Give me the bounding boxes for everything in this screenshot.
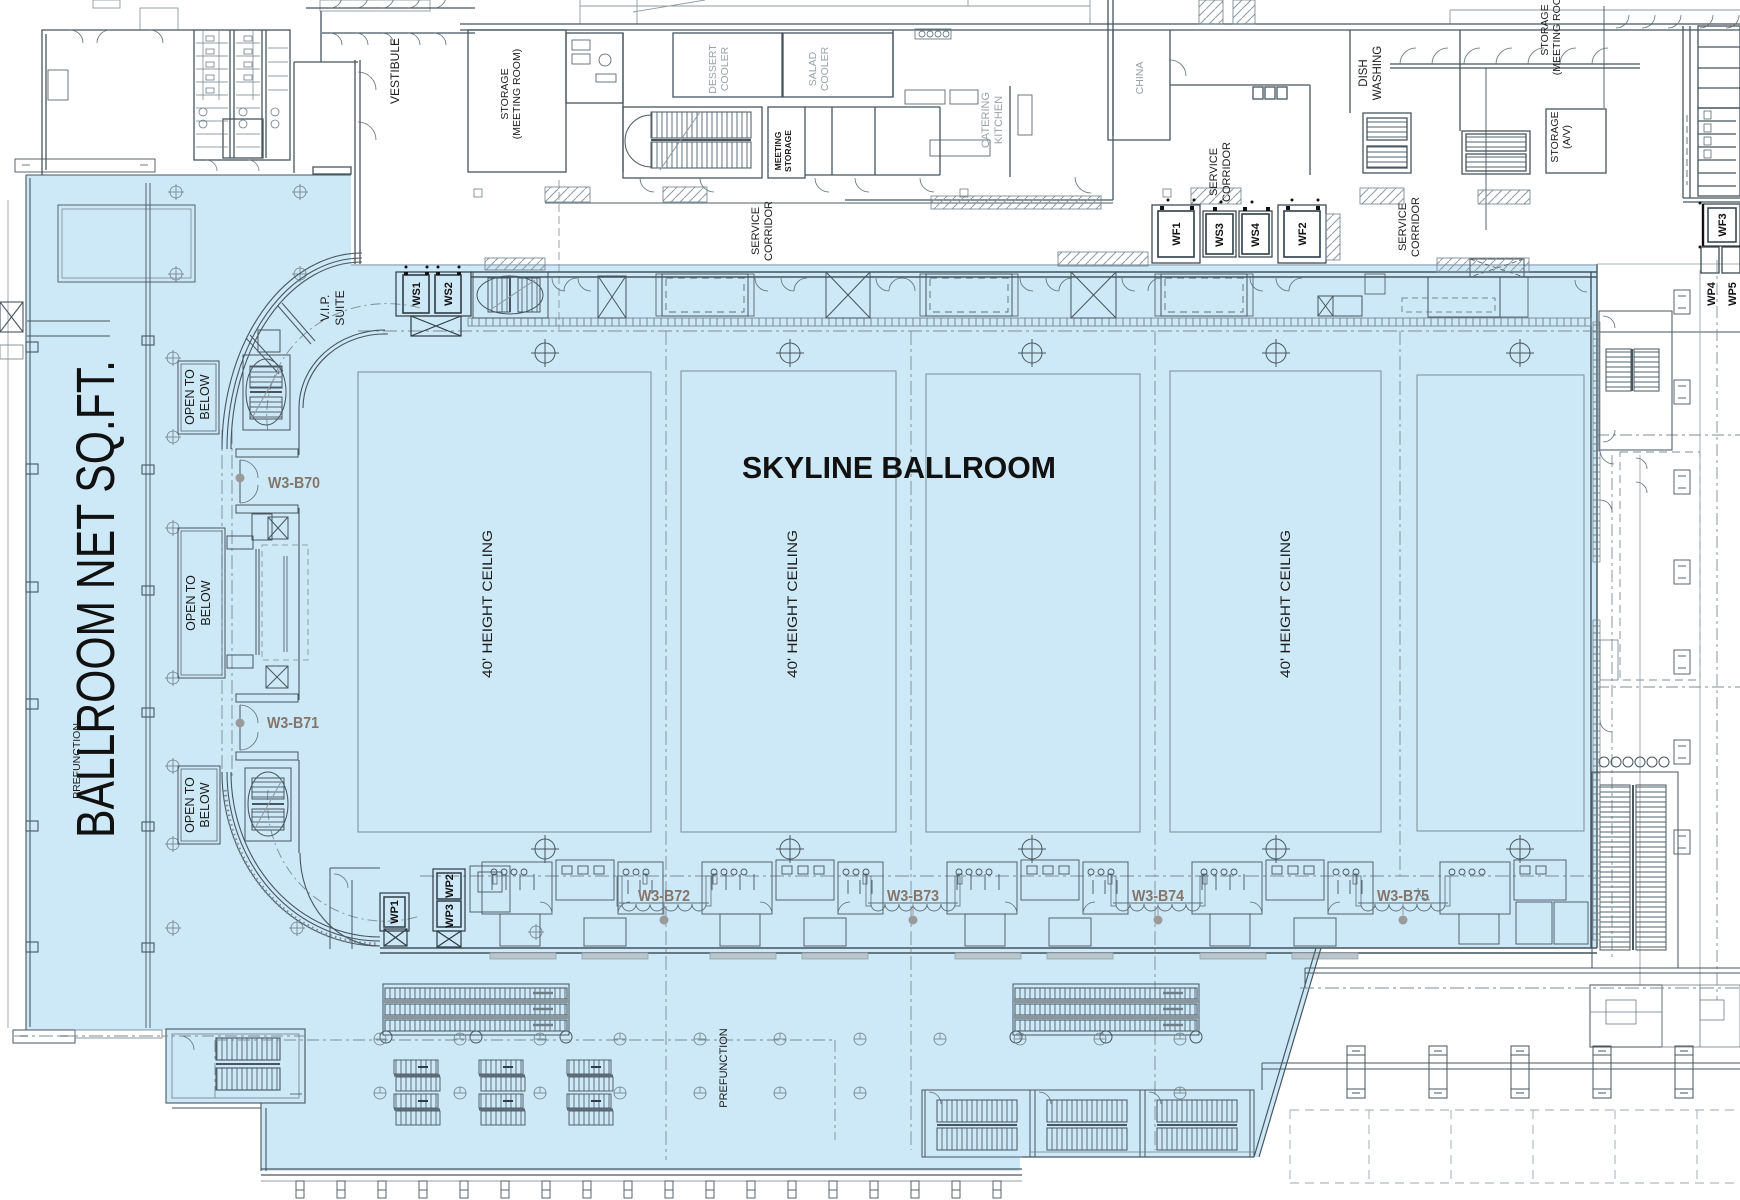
svg-text:SERVICE: SERVICE bbox=[1208, 148, 1220, 196]
svg-text:SUITE: SUITE bbox=[333, 290, 347, 325]
svg-text:WS2: WS2 bbox=[443, 282, 455, 306]
svg-text:CORRIDOR: CORRIDOR bbox=[1410, 197, 1422, 257]
svg-text:V.I.P.: V.I.P. bbox=[318, 295, 332, 322]
svg-text:(MEETING ROOM): (MEETING ROOM) bbox=[511, 49, 523, 139]
svg-text:CORRIDOR: CORRIDOR bbox=[1221, 142, 1233, 202]
svg-text:KITCHEN: KITCHEN bbox=[993, 96, 1005, 144]
svg-text:OPEN TO: OPEN TO bbox=[184, 575, 198, 631]
svg-text:W3-B70: W3-B70 bbox=[268, 475, 320, 492]
svg-text:BELOW: BELOW bbox=[199, 580, 213, 625]
svg-text:(A/V): (A/V) bbox=[1561, 125, 1573, 149]
svg-text:WF3: WF3 bbox=[1717, 213, 1729, 236]
svg-text:W3-B71: W3-B71 bbox=[267, 715, 319, 732]
svg-text:W3-B73: W3-B73 bbox=[887, 888, 939, 905]
svg-text:SKYLINE BALLROOM: SKYLINE BALLROOM bbox=[742, 450, 1056, 485]
svg-text:SALAD: SALAD bbox=[807, 51, 819, 86]
svg-text:WP2: WP2 bbox=[444, 874, 456, 898]
svg-text:OPEN TO: OPEN TO bbox=[183, 369, 197, 425]
svg-text:(MEETING ROOM): (MEETING ROOM) bbox=[1551, 0, 1563, 75]
svg-text:CHINA: CHINA bbox=[1134, 62, 1146, 95]
svg-text:PREFUNCTION: PREFUNCTION bbox=[718, 1028, 730, 1108]
svg-text:BELOW: BELOW bbox=[198, 374, 212, 419]
svg-text:CORRIDOR: CORRIDOR bbox=[763, 201, 775, 261]
svg-text:STORAGE: STORAGE bbox=[1539, 4, 1551, 55]
svg-text:W3-B75: W3-B75 bbox=[1377, 888, 1429, 905]
svg-text:VESTIBULE: VESTIBULE bbox=[388, 38, 402, 104]
svg-text:WASHING: WASHING bbox=[1372, 46, 1384, 101]
svg-text:DISH: DISH bbox=[1358, 59, 1370, 86]
svg-text:MEETING: MEETING bbox=[773, 131, 783, 170]
svg-text:STORAGE: STORAGE bbox=[1549, 111, 1561, 162]
svg-text:COOLER: COOLER bbox=[719, 46, 731, 91]
svg-text:WS4: WS4 bbox=[1250, 222, 1262, 247]
svg-text:BELOW: BELOW bbox=[198, 782, 212, 827]
svg-text:W3-B72: W3-B72 bbox=[638, 888, 690, 905]
svg-text:40' HEIGHT CEILING: 40' HEIGHT CEILING bbox=[1278, 530, 1293, 678]
svg-text:WF2: WF2 bbox=[1297, 222, 1309, 245]
svg-text:STORAGE: STORAGE bbox=[783, 130, 793, 172]
svg-text:WP3: WP3 bbox=[444, 904, 456, 928]
svg-text:WF1: WF1 bbox=[1171, 222, 1183, 245]
svg-text:PREFUNCTION: PREFUNCTION bbox=[71, 723, 83, 799]
svg-text:DESSERT: DESSERT bbox=[707, 44, 719, 94]
svg-text:40' HEIGHT CEILING: 40' HEIGHT CEILING bbox=[785, 530, 800, 678]
svg-text:WS1: WS1 bbox=[411, 282, 423, 306]
svg-text:CATERING: CATERING bbox=[980, 92, 992, 148]
svg-text:WP5: WP5 bbox=[1727, 282, 1739, 306]
svg-text:WS3: WS3 bbox=[1214, 223, 1226, 247]
svg-text:SERVICE: SERVICE bbox=[750, 207, 762, 255]
svg-text:SERVICE: SERVICE bbox=[1397, 203, 1409, 251]
svg-text:STORAGE: STORAGE bbox=[499, 68, 511, 119]
svg-text:WP1: WP1 bbox=[389, 900, 401, 924]
svg-text:OPEN TO: OPEN TO bbox=[183, 777, 197, 833]
svg-text:40' HEIGHT CEILING: 40' HEIGHT CEILING bbox=[480, 530, 495, 678]
svg-text:COOLER: COOLER bbox=[819, 46, 831, 91]
svg-text:W3-B74: W3-B74 bbox=[1132, 888, 1184, 905]
svg-text:WP4: WP4 bbox=[1706, 281, 1718, 306]
